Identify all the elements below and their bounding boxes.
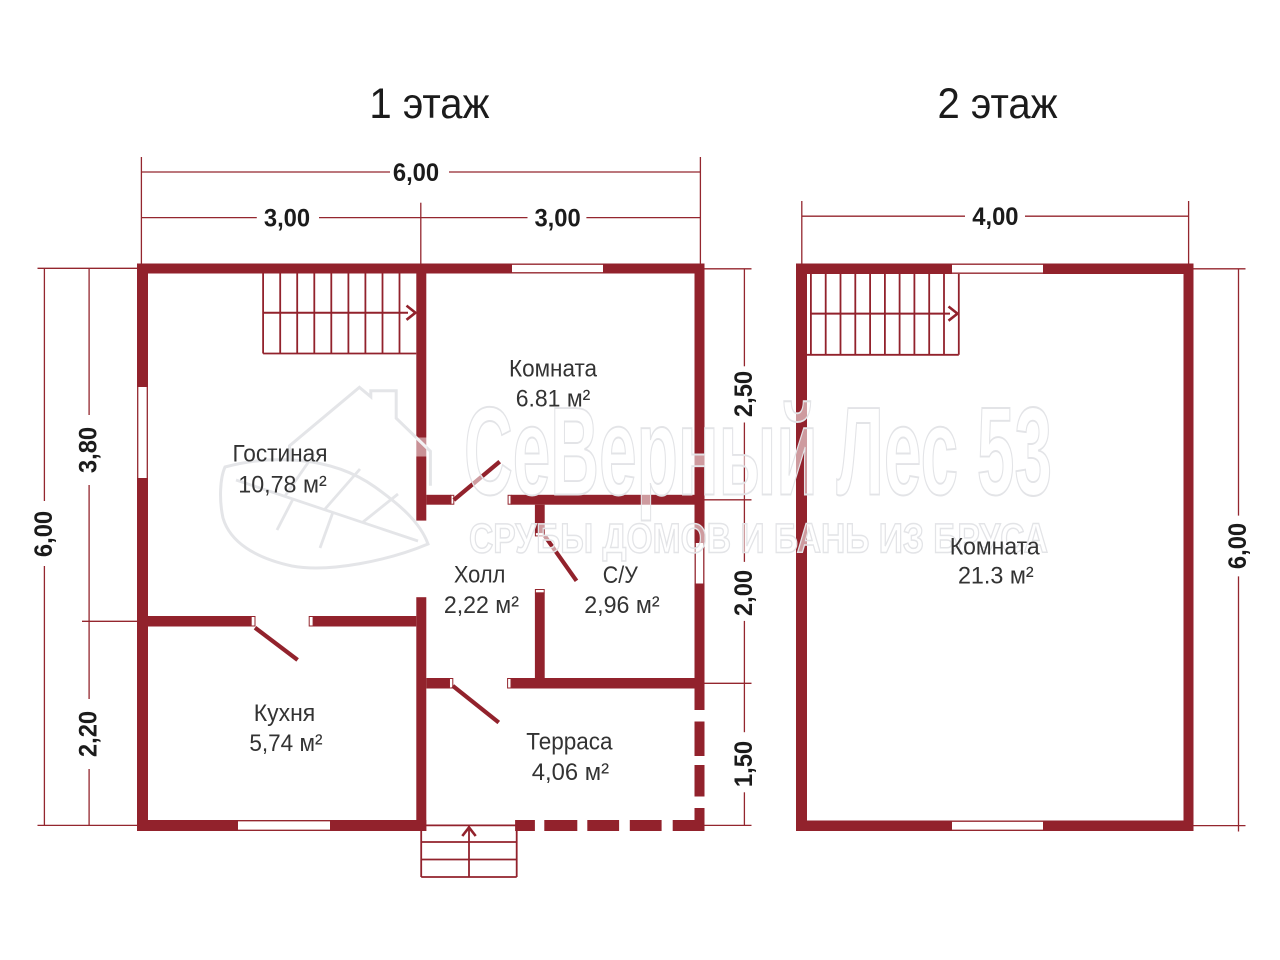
svg-text:6.81 м²: 6.81 м² [516, 385, 591, 412]
svg-text:6,00: 6,00 [1224, 523, 1252, 569]
svg-text:3,80: 3,80 [75, 427, 103, 473]
svg-text:Холл: Холл [454, 562, 506, 589]
svg-text:1,50: 1,50 [730, 741, 758, 787]
svg-text:2,00: 2,00 [730, 570, 758, 616]
svg-text:1 этаж: 1 этаж [369, 80, 489, 128]
svg-text:2 этаж: 2 этаж [938, 80, 1058, 128]
svg-text:21.3 м²: 21.3 м² [958, 563, 1034, 590]
svg-text:3,00: 3,00 [264, 205, 310, 233]
svg-text:Терраса: Терраса [526, 729, 613, 756]
svg-text:10,78 м²: 10,78 м² [238, 472, 326, 499]
svg-text:Гостиная: Гостиная [233, 441, 328, 468]
svg-text:Комната: Комната [509, 355, 597, 382]
svg-text:6,00: 6,00 [30, 511, 58, 557]
svg-text:2,50: 2,50 [730, 371, 758, 417]
svg-text:5,74 м²: 5,74 м² [249, 730, 322, 757]
svg-text:4,06 м²: 4,06 м² [532, 759, 609, 786]
svg-text:3,00: 3,00 [534, 205, 580, 233]
svg-text:2,20: 2,20 [75, 711, 103, 757]
svg-text:Кухня: Кухня [254, 700, 316, 727]
svg-text:С/У: С/У [603, 562, 638, 589]
svg-text:Комната: Комната [950, 534, 1040, 561]
svg-text:4,00: 4,00 [972, 203, 1018, 231]
svg-text:6,00: 6,00 [393, 159, 439, 187]
svg-text:2,22 м²: 2,22 м² [444, 592, 519, 619]
svg-text:2,96 м²: 2,96 м² [584, 592, 659, 619]
